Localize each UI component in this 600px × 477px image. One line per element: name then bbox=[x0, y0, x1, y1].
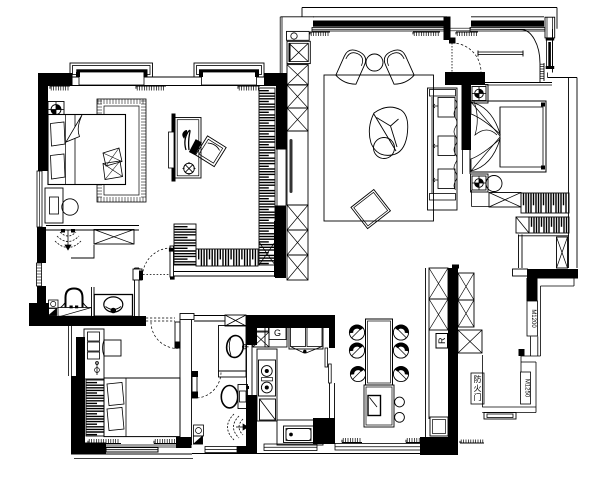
svg-text:火: 火 bbox=[474, 384, 482, 393]
svg-text:R: R bbox=[437, 337, 447, 344]
svg-text:M1250: M1250 bbox=[524, 379, 530, 398]
svg-text:门: 门 bbox=[474, 392, 482, 402]
svg-text:M1200: M1200 bbox=[530, 309, 536, 328]
svg-text:防: 防 bbox=[474, 374, 482, 384]
svg-text:G: G bbox=[274, 328, 281, 338]
